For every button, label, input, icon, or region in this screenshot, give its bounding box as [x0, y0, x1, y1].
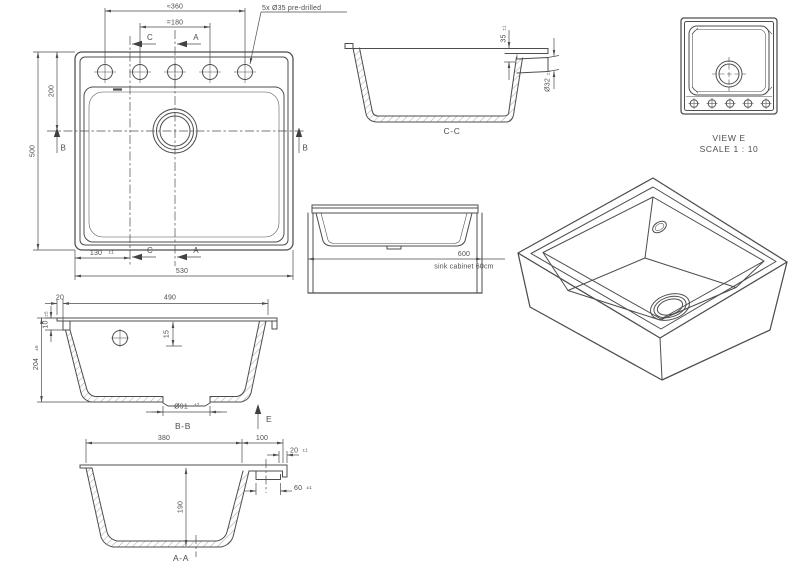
- sink-elevation: [312, 205, 478, 249]
- dim-500-label: 500: [30, 145, 37, 157]
- rim-left-lip: [345, 44, 353, 49]
- dim-20-label: 20: [290, 448, 298, 455]
- wall-hatch: [353, 48, 523, 122]
- overflow-hole: [651, 219, 669, 235]
- dim-380-label: 380: [158, 435, 170, 442]
- view-e-scale: SCALE 1 : 10: [700, 144, 759, 154]
- section-c-label: C: [147, 33, 153, 42]
- dim-180-label: =180: [167, 20, 184, 27]
- dimension-600: 600 sink cabinet 60cm: [308, 251, 505, 271]
- dim-190-label: 190: [178, 501, 185, 513]
- isometric-view: [518, 178, 787, 380]
- dimension-380: 380: [86, 435, 242, 463]
- cabinet-view: 600 sink cabinet 60cm: [308, 205, 505, 293]
- deck-right-lip: [249, 465, 287, 477]
- dimension-130: 130 ±1: [75, 250, 130, 281]
- rim-inner-edge: [531, 187, 776, 329]
- rim-front-edges: [518, 253, 787, 338]
- section-bb-view: 20 490 10 ±5 204 ±5 15 Ø91 +2 E B-B: [33, 295, 277, 432]
- dim-200-label: 200: [49, 85, 56, 97]
- section-marker-c-top: C: [132, 33, 156, 47]
- bowl-bottom-outline: [89, 92, 279, 237]
- dim-20-label: 20: [56, 295, 64, 302]
- outer-profile: [353, 48, 523, 122]
- dimension-35: 35 ±1: [501, 25, 516, 80]
- dimension-200: 200: [33, 52, 75, 131]
- dim-360-label: ≈360: [167, 4, 183, 11]
- overflow-hole: [111, 329, 129, 347]
- tap-hole: [689, 98, 700, 109]
- bowl-outline: [84, 87, 284, 242]
- tap-hole: [707, 98, 718, 109]
- dim-60-tolerance: ±1: [307, 485, 313, 490]
- view-marker-e: E: [255, 404, 272, 429]
- inner-profile: [92, 468, 243, 541]
- wall-hatch: [86, 468, 249, 547]
- section-a-label: A: [193, 246, 199, 255]
- drain-icon: [647, 289, 693, 325]
- tap-ledge: [256, 471, 281, 480]
- view-e-marker-label: E: [266, 414, 272, 424]
- plan-view: ≈360 =180 5x Ø35 pre-drilled 200 500 130…: [30, 4, 348, 281]
- dim-60-label: 60: [294, 485, 302, 492]
- dim-204-label: 204: [33, 358, 40, 370]
- predrilled-note: 5x Ø35 pre-drilled: [250, 5, 347, 64]
- section-c-label: C: [147, 246, 153, 255]
- dim-130-tolerance: ±1: [109, 250, 115, 255]
- dimension-100: 100: [242, 435, 283, 463]
- cabinet-note-label: sink cabinet 60cm: [434, 264, 493, 271]
- section-bb-title: B-B: [175, 421, 191, 431]
- dimension-10: 10 ±5: [43, 306, 64, 342]
- tap-hole: [234, 61, 256, 83]
- dimension-o32: Ø32 ±1: [545, 38, 560, 92]
- section-marker-a-top: A: [177, 33, 201, 47]
- rim-top-lines: [57, 318, 277, 321]
- tap-hole: [129, 61, 151, 83]
- tap-holes-small: [689, 98, 772, 109]
- dimension-500: 500: [30, 52, 76, 250]
- rim-top-lines: [80, 465, 287, 468]
- dim-o91-tolerance: +2: [194, 402, 200, 407]
- predrilled-note-label: 5x Ø35 pre-drilled: [262, 5, 321, 12]
- section-a-label: A: [193, 33, 199, 42]
- dim-10-label: 10: [43, 320, 50, 328]
- section-cc-view: 35 ±1 Ø32 ±1 C-C: [345, 25, 559, 136]
- dim-130-label: 130: [90, 250, 102, 257]
- cabinet-outline: [308, 213, 482, 293]
- section-cc-title: C-C: [444, 126, 461, 136]
- view-e-title: VIEW E: [712, 133, 745, 143]
- tap-hole: [725, 98, 736, 109]
- view-e: VIEW E SCALE 1 : 10: [681, 18, 777, 154]
- front-corner-edge: [660, 338, 662, 379]
- section-marker-a-bottom: A: [177, 246, 201, 260]
- outer-profile: [86, 468, 249, 547]
- dimension-530: 530: [75, 250, 293, 280]
- dim-530-label: 530: [176, 268, 188, 275]
- dim-35-label: 35: [501, 34, 508, 42]
- bowl-opening-edge: [543, 197, 764, 319]
- dim-o32-tolerance: ±1: [546, 70, 551, 76]
- section-aa-view: 380 100 20 ±1 60 ±1 190 A-A: [80, 435, 312, 563]
- drain-icon: [712, 57, 746, 91]
- section-b-label: B: [303, 144, 309, 153]
- inner-profile: [360, 48, 517, 116]
- section-marker-c-bottom: C: [132, 246, 156, 260]
- dimension-190: 190: [178, 468, 187, 546]
- dimension-60: 60 ±1: [244, 483, 312, 495]
- section-b-label: B: [61, 144, 67, 153]
- dim-20-tolerance: ±1: [303, 448, 309, 453]
- dim-490-label: 490: [164, 295, 176, 302]
- dim-100-label: 100: [256, 435, 268, 442]
- tap-hole: [94, 61, 116, 83]
- sink-drawing-svg: ≈360 =180 5x Ø35 pre-drilled 200 500 130…: [0, 0, 800, 565]
- dim-204-tolerance: ±5: [34, 345, 39, 351]
- overflow-spigot: [505, 49, 548, 74]
- section-aa-title: A-A: [173, 553, 189, 563]
- dimension-490: 490: [63, 295, 268, 316]
- tap-hole: [761, 98, 772, 109]
- dim-15-label: 15: [164, 330, 171, 338]
- dim-10-tolerance: ±5: [44, 311, 49, 317]
- dim-o91-label: Ø91: [174, 404, 188, 411]
- tap-hole: [199, 61, 221, 83]
- dimension-20: 20 ±1: [267, 448, 308, 464]
- dim-600-label: 600: [458, 251, 470, 258]
- technical-drawing-sheet: ≈360 =180 5x Ø35 pre-drilled 200 500 130…: [0, 0, 800, 565]
- bowl-bottom-edge: [568, 258, 736, 320]
- rim-right-hook: [272, 321, 277, 329]
- dim-o32-label: Ø32: [545, 78, 552, 92]
- bowl-corner-edges: [543, 197, 764, 291]
- dim-35-tolerance: ±1: [502, 25, 507, 31]
- dimension-15: 15: [164, 322, 183, 346]
- rim-left-tab: [63, 321, 70, 330]
- tap-hole: [743, 98, 754, 109]
- dimension-o91: Ø91 +2: [146, 402, 227, 416]
